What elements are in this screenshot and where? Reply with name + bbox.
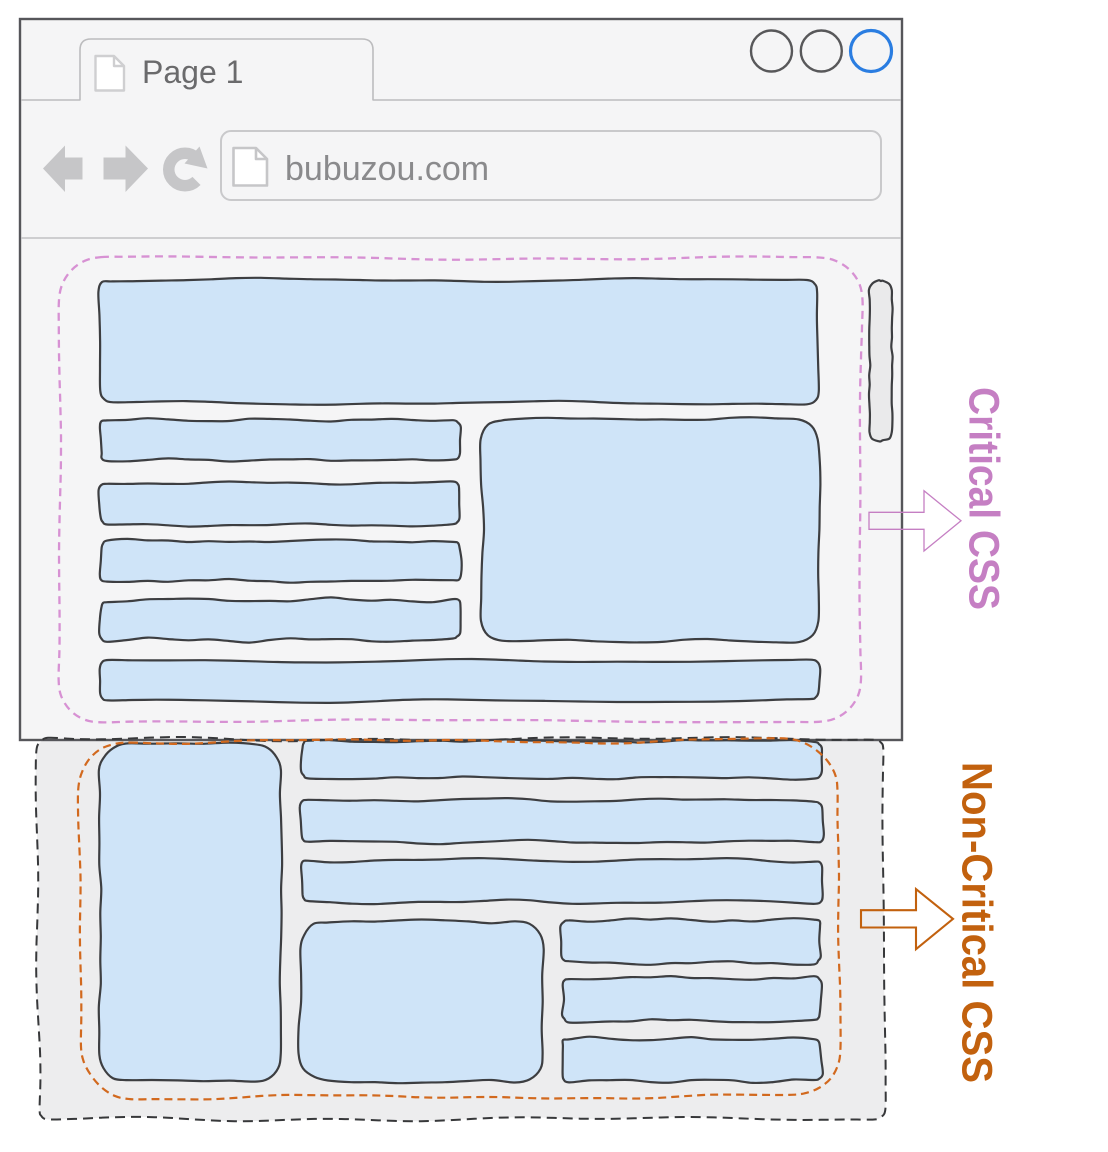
- svg-text:Non-Critical CSS: Non-Critical CSS: [953, 762, 1001, 1083]
- svg-text:Critical CSS: Critical CSS: [960, 387, 1008, 610]
- svg-text:Page 1: Page 1: [142, 54, 243, 90]
- svg-text:bubuzou.com: bubuzou.com: [285, 150, 489, 188]
